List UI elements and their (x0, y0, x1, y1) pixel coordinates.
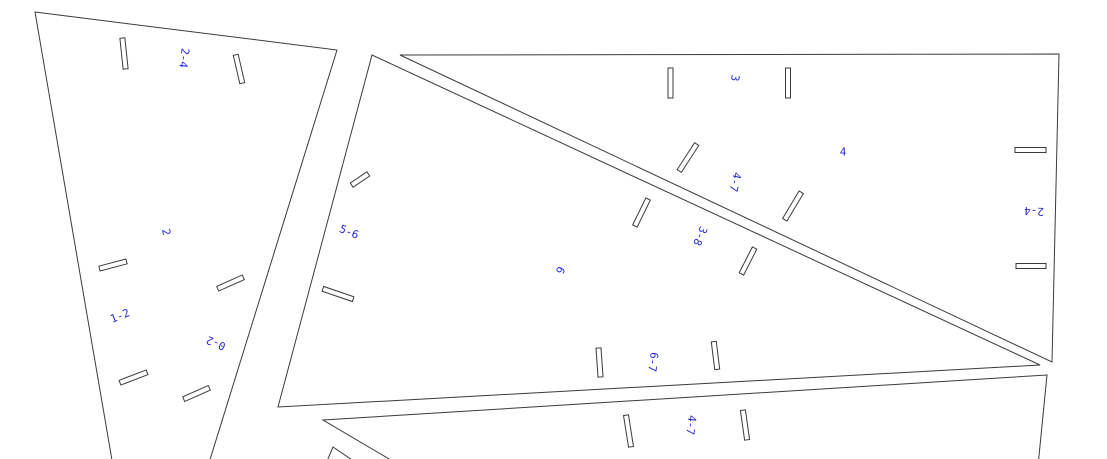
part-number-label-8[interactable]: 6-7 (645, 351, 660, 372)
part-number-label-13[interactable]: 4-7 (683, 414, 698, 435)
slot-cutout-17[interactable] (1015, 148, 1046, 153)
part-number-label-1[interactable]: 2-4 (176, 47, 191, 69)
cad-drawing-canvas[interactable]: 2-421-20-25-663-86-7344-72-44-7 (0, 0, 1107, 459)
part-number-label-10[interactable]: 4 (840, 146, 847, 159)
slot-cutout-18[interactable] (1016, 264, 1046, 269)
slot-cutout-14[interactable] (786, 68, 791, 98)
part-number-label-12[interactable]: 2-4 (1023, 204, 1044, 218)
slot-cutout-13[interactable] (668, 68, 673, 98)
panel-E-outline[interactable] (325, 447, 361, 459)
nesting-layout-drawing: 2-421-20-25-663-86-7344-72-44-7 (0, 0, 1107, 459)
